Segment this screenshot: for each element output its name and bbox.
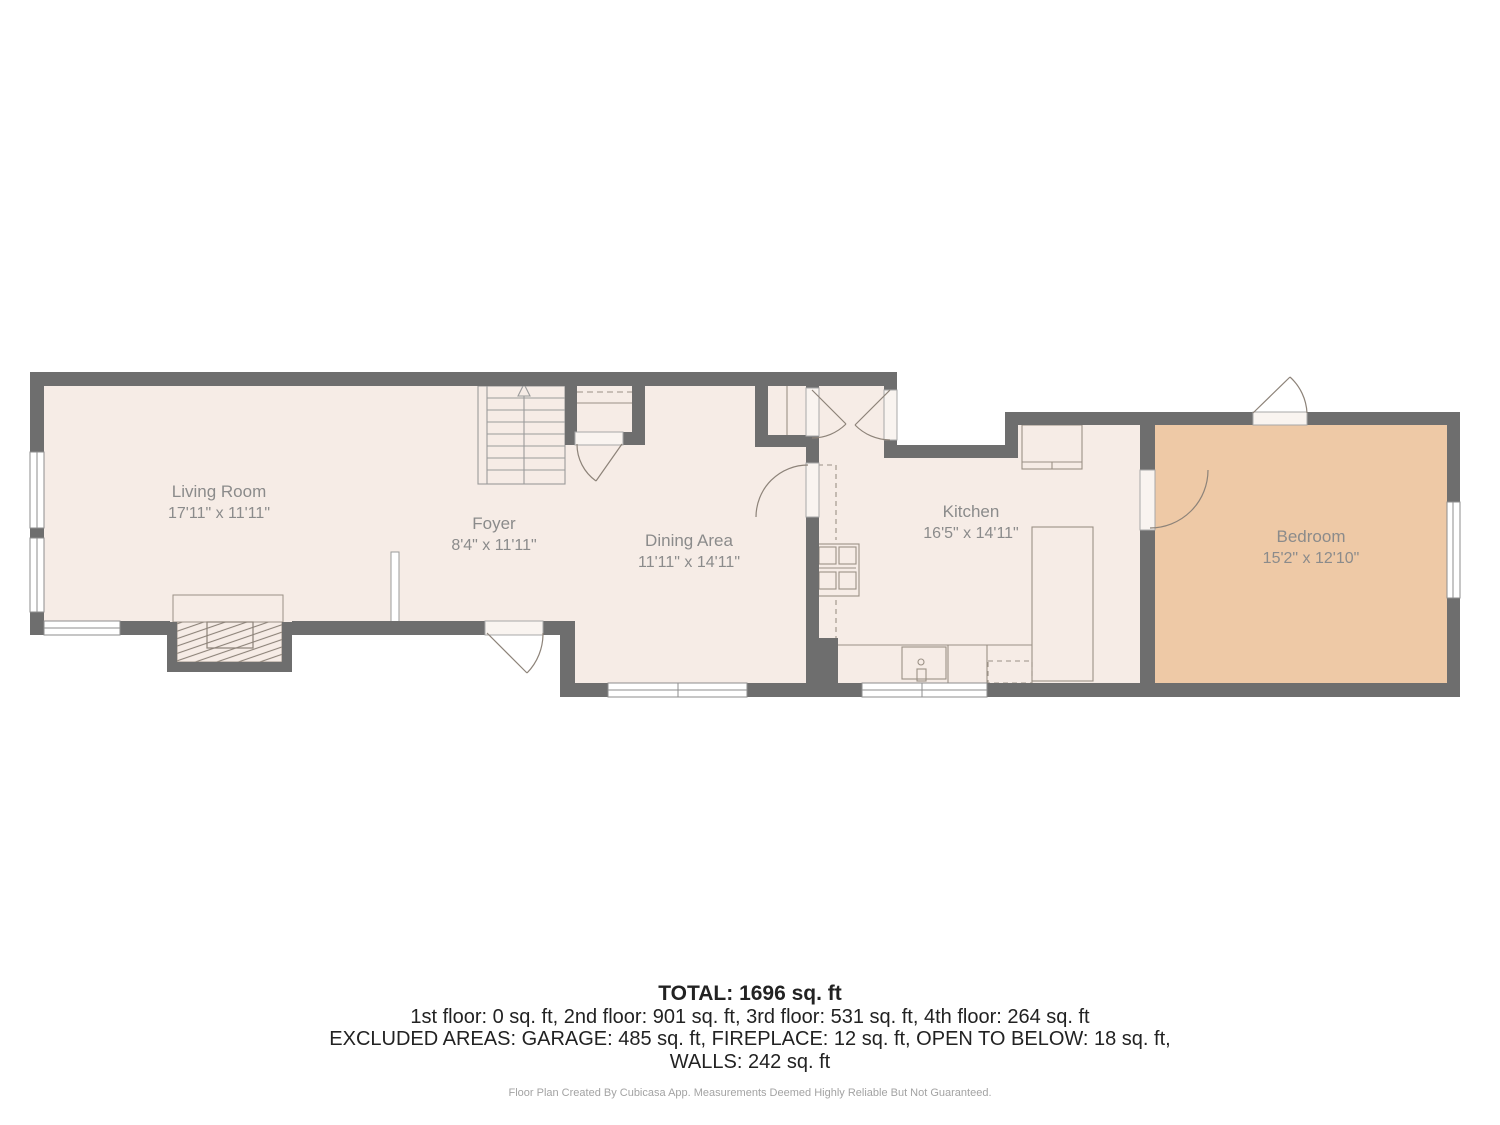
room-dims: 17'11" x 11'11" [168, 503, 270, 525]
area-summary: TOTAL: 1696 sq. ft 1st floor: 0 sq. ft, … [0, 983, 1500, 1073]
excluded-areas-line2: WALLS: 242 sq. ft [0, 1051, 1500, 1074]
room-label-foyer: Foyer 8'4" x 11'11" [451, 513, 536, 557]
room-label-kitchen: Kitchen 16'5" x 14'11" [923, 501, 1018, 545]
floor-areas: 1st floor: 0 sq. ft, 2nd floor: 901 sq. … [0, 1006, 1500, 1029]
total-area: TOTAL: 1696 sq. ft [0, 983, 1500, 1006]
window [608, 683, 747, 697]
window [30, 538, 44, 612]
window [862, 683, 987, 697]
bedroom-exterior-door [1253, 377, 1307, 413]
disclaimer: Floor Plan Created By Cubicasa App. Meas… [0, 1087, 1500, 1099]
window [30, 452, 44, 528]
floor-plan-page: Living Room 17'11" x 11'11" Foyer 8'4" x… [0, 0, 1500, 1125]
room-name: Dining Area [638, 530, 740, 552]
cabinet [1022, 425, 1082, 469]
side-entry-door [487, 633, 543, 673]
room-name: Living Room [168, 481, 270, 503]
excluded-areas-line1: EXCLUDED AREAS: GARAGE: 485 sq. ft, FIRE… [0, 1028, 1500, 1051]
room-dims: 15'2" x 12'10" [1263, 548, 1360, 570]
room-dims: 16'5" x 14'11" [923, 523, 1018, 545]
room-dims: 8'4" x 11'11" [451, 535, 536, 557]
room-label-bedroom: Bedroom 15'2" x 12'10" [1263, 526, 1360, 570]
room-label-living-room: Living Room 17'11" x 11'11" [168, 481, 270, 525]
fireplace [167, 595, 292, 672]
room-name: Kitchen [923, 501, 1018, 523]
room-name: Foyer [451, 513, 536, 535]
floor-plan-drawing [0, 0, 1500, 780]
stove [816, 544, 859, 596]
half-wall-partition [391, 552, 399, 622]
room-name: Bedroom [1263, 526, 1360, 548]
window [1447, 502, 1460, 598]
room-label-dining-area: Dining Area 11'11" x 14'11" [638, 530, 740, 574]
room-dims: 11'11" x 14'11" [638, 552, 740, 574]
window [44, 621, 120, 635]
